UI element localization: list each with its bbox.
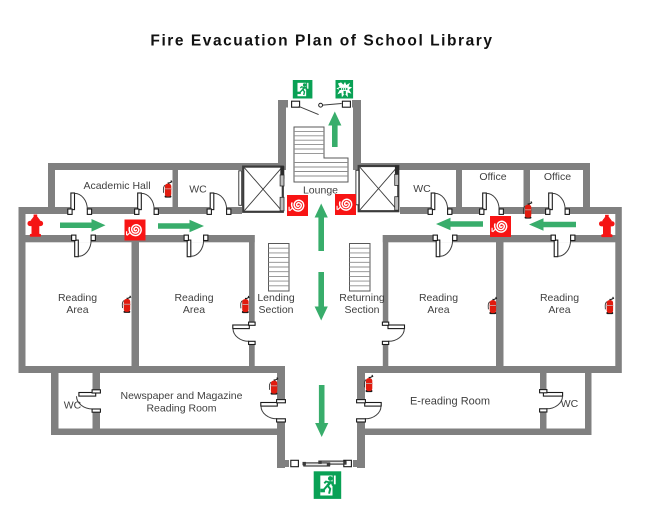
svg-text:Office: Office (479, 171, 506, 183)
svg-text:ReturningSection: ReturningSection (339, 292, 385, 316)
svg-text:WC: WC (64, 400, 82, 412)
svg-text:WC: WC (561, 398, 579, 410)
svg-text:Lounge: Lounge (303, 185, 338, 197)
svg-text:Fire Evacuation Plan of School: Fire Evacuation Plan of School Library (150, 33, 493, 50)
svg-text:WC: WC (413, 183, 431, 195)
svg-text:E-reading Room: E-reading Room (410, 396, 490, 408)
svg-text:Office: Office (544, 171, 571, 183)
svg-text:Academic Hall: Academic Hall (83, 180, 150, 192)
svg-text:LendingSection: LendingSection (257, 292, 295, 316)
svg-text:WC: WC (189, 183, 207, 195)
